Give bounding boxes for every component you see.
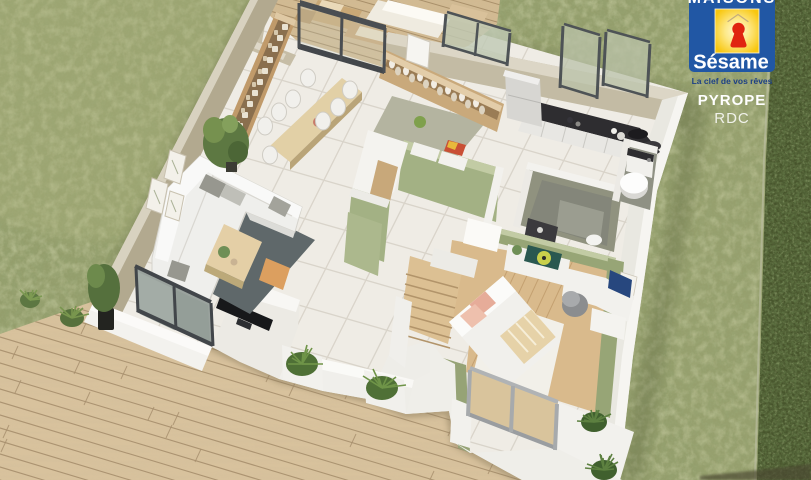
svg-text:MAISONS: MAISONS — [688, 0, 777, 7]
svg-text:Sésame: Sésame — [693, 52, 769, 74]
svg-text:PYROPE: PYROPE — [698, 92, 767, 109]
svg-text:La clef de vos rêves: La clef de vos rêves — [692, 76, 773, 86]
svg-text:RDC: RDC — [714, 110, 750, 127]
